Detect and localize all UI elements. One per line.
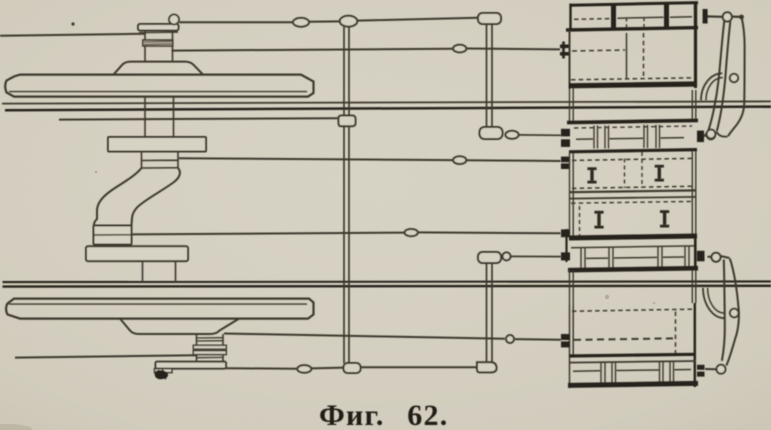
svg-text:Фиг. 62.: Фиг. 62. <box>319 399 448 430</box>
